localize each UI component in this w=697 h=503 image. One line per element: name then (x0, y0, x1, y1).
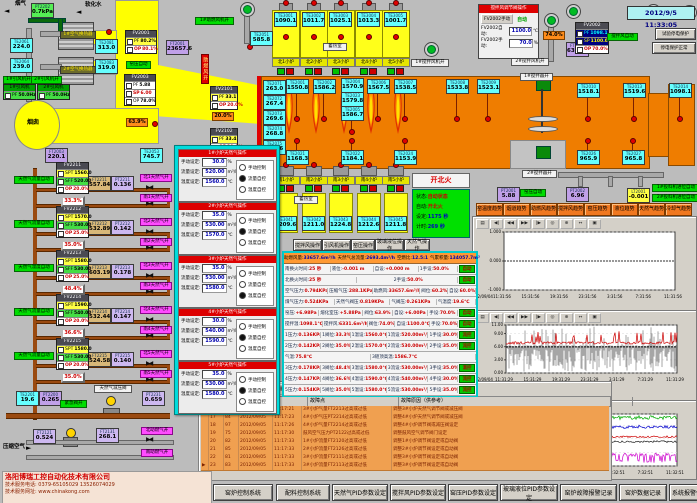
instrument-tag-TE2006: TE20061567.5 (367, 79, 390, 94)
burner-off-indicator[interactable] (396, 68, 404, 75)
radio-icon (239, 281, 246, 288)
burner-off-indicator[interactable] (341, 185, 349, 192)
tag-value: 0.524 (34, 435, 55, 442)
valve-position-readout: 36.6% (61, 328, 85, 339)
value-key-icon (58, 171, 64, 177)
y-tick-label: 11.00 (485, 322, 503, 327)
gas-valve-icon: ▶◀ (146, 333, 151, 339)
mode-radio-option[interactable]: 流量自控 (237, 332, 273, 343)
value-key-icon (58, 275, 64, 281)
process-label: 蓄热室 (323, 43, 347, 51)
value-key-icon (58, 355, 64, 361)
data-cell: 5压力:0.154KPa (284, 387, 321, 393)
trend-button[interactable]: 窑温度趋势 (476, 203, 503, 216)
x-tick-label: 3:31:56 (607, 294, 622, 299)
instrument-tag-FT2212: FT2212532.89 (88, 220, 111, 235)
instrument-tag-TE2014: TE20141098.1 (669, 83, 692, 98)
data-cell: 助燃风:33657.6m³/h (373, 288, 421, 294)
valve-position-readout: 35.0% (61, 240, 85, 251)
burner-on-indicator[interactable] (332, 68, 340, 75)
process-label: ◄ (3, 7, 10, 16)
status-row: 计时:269 秒 (413, 222, 469, 232)
burner-label: 北2小炉 (300, 58, 328, 67)
controller-row: PF33.1 (211, 93, 237, 101)
measure-point (677, 116, 683, 122)
controller-faceplate-FV2101[interactable]: FV2101PF33.1OP20.0% (210, 86, 238, 110)
tag-value: 0.265 (40, 397, 61, 404)
burner-off-indicator[interactable] (369, 185, 377, 192)
controller-faceplate-FV2212[interactable]: FV2212SPT1570.0SFF530.00OP25.0% (56, 206, 89, 238)
setpoint-input[interactable]: 530.00 (202, 380, 227, 389)
setpoint-input[interactable]: 530.00 (202, 221, 227, 230)
setpoint-input[interactable]: 1580.0 (202, 284, 227, 293)
burner-on-indicator[interactable] (305, 185, 313, 192)
process-label: 搅拌风自动 (607, 33, 638, 41)
measure-point (454, 116, 460, 122)
gas-valve-icon: ▶◀ (146, 229, 151, 235)
instrument-tag-FT2003: FT2003220.1 (45, 148, 68, 163)
nozzle (608, 176, 613, 187)
nav-button[interactable]: 搅拌风PID参数设定 (390, 484, 446, 501)
x-tick-label: 11:31:56 (493, 294, 511, 299)
y-tick-label: 0.000 (483, 258, 501, 263)
controller-row: PF50.0Hz (38, 91, 69, 99)
data-cell: 4流设:540.00m³/h (387, 376, 429, 382)
tag-value: 603.19 (89, 270, 110, 277)
burner-on-indicator[interactable] (387, 68, 395, 75)
process-data-panel: 助燃风量:33657.6m³/h天然气总流量:2693.4m³/h空燃比:12.… (282, 251, 478, 397)
mode-radio-option[interactable]: 温度自控 (237, 184, 273, 195)
data-cell: 阀位:60.2% (420, 288, 448, 294)
instrument-tag-TE3005: TE30051001.7 (384, 12, 407, 27)
mode-radio-option[interactable]: 手动控制 (237, 374, 273, 385)
process-label: ► (25, 444, 32, 453)
controller-row: SFF530.00 (57, 265, 88, 273)
tag-value: 557.84 (89, 182, 110, 189)
burner-off-indicator[interactable] (286, 68, 294, 75)
burner-off-indicator[interactable] (286, 185, 294, 192)
data-cell: 阀位:63.9% (363, 310, 393, 316)
mode-radio-option[interactable]: 手动控制 (237, 321, 273, 332)
value-key-icon (126, 83, 132, 89)
process-label: 北助燃气开 (141, 427, 173, 435)
tag-value: 1523.1 (478, 85, 499, 92)
mode-badge: 温控 (459, 364, 475, 372)
burner-off-indicator[interactable] (396, 185, 404, 192)
controller-row: OP20.0% (57, 317, 88, 325)
firing-status-panel: 状态:自动状态自动:开北火设定:1175 秒计时:269 秒 (412, 189, 470, 238)
burner-off-indicator[interactable] (314, 68, 322, 75)
instrument-tag-TE2009: TE20091523.1 (477, 79, 500, 94)
instrument-tag-TE3003: TE30031025.1 (329, 12, 352, 27)
process-label: 南2天然气开 (140, 238, 172, 246)
controller-row: OP25.0% (57, 273, 88, 281)
stirrer-paddle (528, 116, 558, 122)
instrument-tag-TE3044: TE30441212.6 (357, 216, 380, 231)
data-cell: 手设:70.0% (428, 310, 458, 316)
data-cell: 3碹顶高温:1586.7℃ (371, 354, 476, 360)
instrument-tag-PT2213: PT22130.178 (111, 264, 134, 279)
leader-line (404, 92, 405, 118)
section-title: 3#小炉天然气操作 (179, 256, 276, 263)
tag-value: 19.6 (17, 397, 38, 404)
process-label: 紧急阀开 (60, 400, 87, 408)
mode-radio-option[interactable]: 流量自控 (237, 173, 273, 184)
tag-value: 239.0 (11, 64, 32, 71)
data-cell: 5流设:530.00m³/h (387, 387, 429, 393)
setpoint-input[interactable]: 1100.0 (509, 27, 532, 36)
instrument-tag-TE2071: TE2071263.0 (263, 80, 286, 95)
measure-point (630, 138, 636, 144)
setpoint-input[interactable]: 35.0 (202, 264, 227, 273)
status-row: 设定:1175 秒 (413, 212, 469, 222)
setpoint-input[interactable]: 35.0 (202, 211, 227, 220)
controller-row: PF5.88 (125, 81, 155, 89)
process-label: 窑压自动 (126, 61, 151, 69)
burner-on-indicator[interactable] (305, 68, 313, 75)
tag-value: 23657.6 (167, 46, 188, 53)
instrument-tag-TE2005: TE20051586.7 (341, 106, 364, 121)
nav-button[interactable]: 配料控制系统 (276, 484, 330, 501)
y-tick-label: 1.000 (483, 229, 501, 234)
process-label: 南1天然气开 (140, 194, 172, 202)
valve-position-readout: 74.0% (543, 31, 565, 40)
data-cell: 煤气压力:0.524KPa (284, 299, 335, 305)
mode-radio-option[interactable]: 流量自控 (237, 226, 273, 237)
process-label: 软化水 (84, 2, 103, 9)
setpoint-input[interactable]: 540.00 (202, 327, 227, 336)
data-panel-row: 2压力:0.142KPa2阀位:35.0%2温设:1570.0℃2流设:530.… (284, 341, 476, 352)
fv2002-manual-button[interactable]: FV2002手动 (481, 14, 513, 24)
burner-label: 南5小炉 (382, 176, 410, 185)
radio-icon (239, 175, 246, 182)
data-cell: 5手设:35.0% (428, 387, 458, 393)
data-cell: 3流设:530.00m³/h (387, 365, 429, 371)
tag-value: 1538.5 (395, 85, 416, 92)
data-cell: 5阀位:35.0% (321, 387, 351, 393)
burner-off-indicator[interactable] (314, 185, 322, 192)
setpoint-input[interactable]: 1580.0 (202, 390, 227, 399)
instrument-tag-TE3042: TE30421211.0 (302, 216, 325, 231)
datetime-display: 2012/9/5 11:33:05 (627, 6, 695, 20)
pipe (40, 64, 62, 70)
radio-icon (239, 228, 246, 235)
data-panel-row: 1压力:0.136KPa1阀位:33.3%1温设:1560.0℃1流设:520.… (284, 330, 476, 341)
power-normal-button[interactable]: 停电保护正常 (652, 42, 696, 54)
instrument-tag-TE3002: TE30021011.7 (302, 12, 325, 27)
controller-faceplate-FV2213[interactable]: FV2213SPT1580.0SFF530.00OP25.0% (56, 250, 89, 282)
instrument-tag-TE2064: TE2064239.0 (10, 58, 33, 73)
process-label: 助燃风开 (201, 54, 209, 84)
value-key-icon (212, 103, 218, 109)
leader-line (456, 92, 457, 118)
controller-faceplate-2#引风机[interactable]: 2#引风机PF50.0Hz (37, 84, 70, 100)
mode-radio-option[interactable]: 温度自控 (237, 237, 273, 248)
fan-icon (424, 42, 439, 57)
setpoint-input[interactable]: 530.00 (202, 274, 227, 283)
data-cell: 4手设:30.0% (428, 376, 458, 382)
section-title: 5#小炉天然气操作 (179, 362, 276, 369)
burner-label: 北3小炉 (327, 58, 355, 67)
trend-button[interactable]: 搅拌风趋势 (557, 203, 584, 216)
data-panel-row: 南换火时间:25 秒液位:-0.001 m自设:+0.000 m1手设:50.0… (284, 264, 476, 275)
tag-value: 220.1 (46, 154, 67, 161)
data-cell: 北换火时间:25 秒 (284, 277, 357, 283)
process-label: 2#引风机开 (31, 76, 62, 84)
leader-line (296, 92, 297, 118)
data-cell: 2阀位:35.0% (321, 343, 351, 349)
instrument-tag-LT2001: LT2001-0.001 (627, 188, 650, 203)
mode-radio-option[interactable]: 流量自控 (237, 385, 273, 396)
ops-button[interactable]: 天然气操作 (404, 239, 430, 251)
process-label: ◄ (75, 8, 82, 17)
value-key-icon (577, 31, 583, 37)
radio-icon (239, 292, 246, 299)
status-row: 状态:自动状态 (413, 192, 469, 202)
process-label: 北5天然气开 (140, 350, 172, 358)
value-key-icon (39, 93, 45, 99)
tag-value: 965.8 (623, 156, 644, 163)
setpoint-input[interactable]: 35.0 (202, 370, 227, 379)
trend-button[interactable]: 助燃风趋势 (530, 203, 557, 216)
process-label: 北3天然气开 (140, 262, 172, 270)
data-cell: 窑压:+6.98Pa (284, 310, 319, 316)
data-panel-row: 4压力:0.147KPa4阀位:36.6%4温设:1590.0℃4流设:540.… (284, 374, 476, 385)
measure-point (283, 0, 289, 6)
nav-button[interactable]: 天然气PID参数设定 (332, 484, 388, 501)
trend-button[interactable]: 窑压趋势 (584, 203, 611, 216)
controller-row: OP78.0% (125, 97, 155, 105)
nozzle (578, 176, 583, 187)
mode-radio-option[interactable]: 温度自控 (237, 290, 273, 301)
fan-icon (240, 2, 255, 17)
data-cell: 自设:+6.00Pa (393, 310, 428, 316)
tag-value: 532.44 (89, 314, 110, 321)
tag-value: 313.0 (96, 45, 117, 52)
fire-north-button[interactable]: 开北火 (412, 173, 470, 188)
process-label: 2#投料机进位自动 (652, 194, 697, 202)
tag-value: 269.6 (264, 116, 285, 123)
setpoint-input[interactable]: 70.0 (509, 39, 533, 48)
ops-button[interactable]: 玻璃液位操作 (375, 239, 404, 251)
tag-value: 6.96 (567, 193, 588, 200)
controller-faceplate-FV2215[interactable]: FV2215SPT1580.0SFF530.00OP20.0% (56, 338, 89, 370)
control-mode-group: 手动控制流量自控温度自控 (236, 266, 274, 306)
ops-button[interactable]: 窑压操作 (351, 239, 375, 251)
mode-badge: 自动 (459, 265, 475, 273)
controller-faceplate-FV2002[interactable]: FV2002PF1098.1SP1100.0OP70.0% (575, 22, 609, 54)
burner-off-indicator[interactable] (341, 68, 349, 75)
process-label: 北4天然气开 (140, 306, 172, 314)
value-key-icon (127, 47, 133, 53)
gas-valve-icon: ▶◀ (146, 377, 151, 383)
x-tick-label: 15:31:56 (522, 294, 540, 299)
controller-row: SFF530.00 (57, 221, 88, 229)
setpoint-input[interactable]: 1570.0 (202, 231, 227, 240)
trend-button[interactable]: 天然气趋势 (638, 203, 665, 216)
nav-button[interactable]: 窑炉故障报警记录 (560, 484, 617, 501)
instrument-tag-TE2201: TE220119.6 (16, 391, 39, 406)
trend-button[interactable]: 烟道趋势 (503, 203, 530, 216)
measure-point (366, 34, 372, 40)
process-label: 天然气流量自动 (14, 352, 54, 360)
valve-icon: ▶◀ (146, 437, 151, 443)
setpoint-input[interactable]: 520.00 (202, 168, 227, 177)
value-key-icon (58, 231, 64, 237)
data-cell: 压缩气压:288.1KPa (328, 288, 372, 294)
mode-radio-option[interactable]: 手动控制 (237, 162, 273, 173)
gas-burner-popup: 1#小炉天然气操作手动设定:30.0%流量设定:520.00m³/h温度设定:1… (174, 145, 280, 415)
gas-valve-icon: ▶◀ (146, 273, 151, 279)
popup-row: FV2002自动:1100.0℃ (479, 25, 538, 37)
leader-line (487, 92, 488, 118)
measure-point (366, 162, 372, 168)
alarm-row[interactable]: ▶23832012/09/0511:17:333#小炉流量FT2113过高或过低… (201, 462, 609, 471)
data-cell: 4压力:0.147KPa (284, 376, 321, 382)
stirrer-motor-2 (536, 146, 551, 159)
data-panel-row: 3压力:0.178KPa3阀位:48.4%3温设:1580.0℃3流设:530.… (284, 363, 476, 374)
process-label: 1#搅拌风机开 (411, 59, 449, 67)
nav-button[interactable]: 窑炉数据记录 (619, 484, 667, 501)
instrument-tag-PT2231: PT22310.659 (142, 391, 165, 406)
tag-value: 224.0 (11, 44, 32, 51)
controller-faceplate-FV2214[interactable]: FV2214SPT1590.0SFF540.00OP20.0% (56, 294, 89, 326)
measure-point (338, 0, 344, 6)
process-label: 1#搅拌器开 (520, 73, 553, 81)
instrument-tag-TE2001: TE20011550.8 (286, 79, 309, 94)
burner-on-indicator[interactable] (277, 68, 285, 75)
process-label: 南5天然气开 (140, 370, 172, 378)
process-label: 1#空气换热器 (60, 31, 96, 39)
measure-point (375, 116, 381, 122)
section-title: 4#小炉天然气操作 (179, 309, 276, 316)
value-key-icon (58, 259, 64, 265)
nav-button[interactable]: 窑压PID参数设定 (448, 484, 498, 501)
setpoint-input[interactable]: 30.0 (202, 317, 227, 326)
burner-on-indicator[interactable] (332, 185, 340, 192)
burner-gas-section: 1#小炉天然气操作手动设定:30.0%流量设定:520.00m³/h温度设定:1… (178, 149, 277, 202)
nav-button[interactable]: 窑炉控制系统 (213, 484, 273, 501)
controller-faceplate-FV2003[interactable]: FV2003PF5.88SP6.00OP78.0% (124, 74, 156, 106)
instrument-tag-TE3004: TE30041013.3 (357, 12, 380, 27)
x-tick-label: 7:31:29 (638, 377, 653, 382)
mode-radio-option[interactable]: 流量自控 (237, 279, 273, 290)
tag-value: 0.136 (112, 182, 133, 189)
measure-point (294, 116, 300, 122)
controller-faceplate-FV2211[interactable]: FV2211SPT1560.0SFF520.00OP20.0% (56, 162, 89, 194)
ops-button[interactable]: 搅拌风操作 (293, 239, 322, 251)
tag-value: 268.8 (264, 131, 285, 138)
stir-air-valve-popup: 搅拌风调节阀操作FV2002手动自动FV2002自动:1100.0℃FV2002… (478, 4, 539, 59)
nav-button[interactable]: 玻璃液位PID参数设定 (500, 484, 558, 501)
process-label: 烟气 (14, 1, 27, 8)
valve-position-readout: 63.9% (126, 118, 148, 127)
data-cell: 1手设:30.0% (428, 332, 458, 338)
controller-row: OP20.0% (57, 361, 88, 369)
valve-position-readout: 48.4% (61, 284, 85, 295)
setpoint-input[interactable]: 1560.0 (202, 178, 227, 187)
mode-radio-option[interactable]: 温度自控 (237, 396, 273, 407)
chimney-label: 烟囱 (26, 119, 40, 127)
value-key-icon (126, 91, 132, 97)
mode-radio-option[interactable]: 手动控制 (237, 215, 273, 226)
gas-valve-icon: ▶◀ (146, 245, 151, 251)
data-cell: 3阀位:48.4% (321, 365, 351, 371)
process-label: 天然气流量自动 (14, 308, 54, 316)
controller-row: SP6.00 (125, 89, 155, 97)
valve-position-readout: 35.0% (61, 372, 85, 383)
controller-row: OP70.0% (576, 45, 608, 53)
x-tick-label: 11:31:56 (664, 294, 682, 299)
mode-badge: 自动 (459, 320, 475, 328)
controller-row: PF50.0Hz (4, 91, 35, 99)
mode-radio-option[interactable]: 手动控制 (237, 268, 273, 279)
data-panel-row: 空气压力:0.794KPa压缩气压:288.1KPa助燃风:33657.6m³/… (284, 286, 476, 297)
mode-radio-option[interactable]: 温度自控 (237, 343, 273, 354)
controller-faceplate-1#引风机[interactable]: 1#引风机PF50.0Hz (3, 84, 36, 100)
setpoint-input[interactable]: 1590.0 (202, 337, 227, 346)
data-cell: 气温:75.8℃ (284, 354, 371, 360)
process-label: 1#助燃风机开 (195, 17, 234, 25)
section-title: 1#小炉天然气操作 (179, 150, 276, 157)
burner-on-indicator[interactable] (387, 185, 395, 192)
valve-position-readout: 20.0% (212, 112, 234, 121)
instrument-tag-PT2215: PT22150.140 (111, 352, 134, 367)
x-tick-label: 23:31:56 (579, 294, 597, 299)
data-cell: 1压力:0.136KPa (284, 332, 321, 338)
tag-value: 319.0 (96, 65, 117, 72)
data-cell: 1阀位:33.3% (321, 332, 351, 338)
trend-button[interactable]: 冷却气趋势 (665, 203, 692, 216)
instrument-tag-TE2023: TE20231579.8 (341, 92, 364, 107)
instrument-tag-TE2027: TE2027965.8 (622, 150, 645, 165)
measure-point (349, 129, 355, 135)
process-label: 天然气流量自动 (14, 176, 54, 184)
burner-on-indicator[interactable] (360, 185, 368, 192)
burner-on-indicator[interactable] (360, 68, 368, 75)
trend-button[interactable]: 液位趋势 (611, 203, 638, 216)
fan-icon (544, 13, 559, 28)
tag-value: 5.88 (498, 193, 519, 200)
popup-row: FV2002手动:70.0% (479, 37, 538, 49)
mode-badge: 自动 (459, 276, 475, 284)
valve-position-readout: 33.3% (61, 196, 85, 207)
y-tick-label: 3.00 (485, 357, 503, 362)
nav-button[interactable]: 系统报警值设定 (669, 484, 697, 501)
measure-point (366, 0, 372, 6)
data-cell: 2流设:530.00m³/h (387, 343, 429, 349)
tag-value: 1550.8 (287, 85, 308, 92)
tag-value: 268.1 (97, 434, 118, 441)
process-label: 南4天然气开 (140, 326, 172, 334)
burner-off-indicator[interactable] (369, 68, 377, 75)
value-key-icon (58, 267, 64, 273)
measure-point (631, 116, 637, 122)
mode-badge: 流控 (459, 386, 475, 394)
data-cell: 液位:-0.001 m (331, 266, 374, 272)
tag-value: 1184.1 (342, 156, 363, 163)
setpoint-input[interactable]: 30.0 (202, 158, 227, 167)
x-tick-label: 11:31:29 (666, 377, 684, 382)
controller-faceplate-FV2001[interactable]: FV2001PF80.2%OP80.1% (125, 30, 157, 54)
ops-button[interactable]: 引风机操作 (322, 239, 351, 251)
measure-point (393, 34, 399, 40)
data-cell: 2手设:50.0% (393, 277, 458, 283)
radio-icon (239, 270, 246, 277)
value-key-icon (58, 179, 64, 185)
instrument-tag-FT2215: FT2215524.58 (88, 352, 111, 367)
instrument-tag-TE2072: TE2072267.4 (263, 95, 286, 110)
